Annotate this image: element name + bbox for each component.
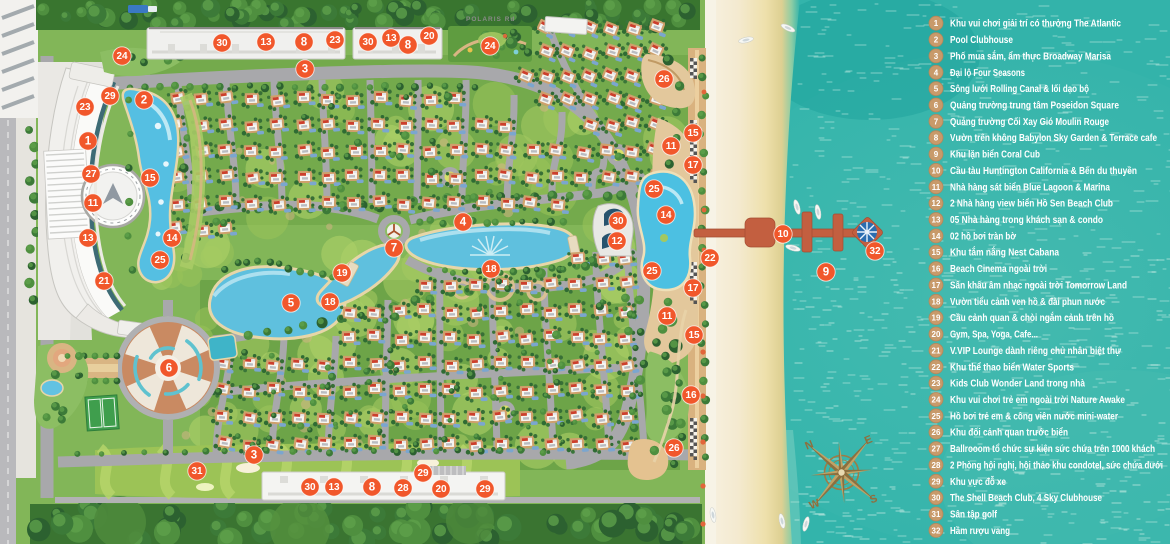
- svg-text:Cầu tàu Huntington California: Cầu tàu Huntington California & Bến du t…: [950, 165, 1137, 177]
- svg-text:17: 17: [932, 281, 941, 290]
- svg-text:11: 11: [932, 183, 941, 192]
- svg-text:V.VIP Lounge dành riêng chủ nh: V.VIP Lounge dành riêng chủ nhân biệt th…: [950, 345, 1121, 357]
- svg-text:15: 15: [687, 128, 699, 139]
- svg-text:9: 9: [934, 150, 939, 159]
- svg-text:Quảng trường Cối Xay Gió Mouli: Quảng trường Cối Xay Gió Moulin Rouge: [950, 116, 1109, 128]
- svg-text:30: 30: [304, 482, 316, 493]
- svg-text:4: 4: [460, 217, 467, 229]
- svg-text:3: 3: [251, 450, 257, 462]
- svg-text:5: 5: [934, 85, 939, 94]
- svg-text:18: 18: [324, 297, 336, 308]
- svg-text:12: 12: [932, 199, 941, 208]
- svg-text:11: 11: [666, 141, 677, 152]
- svg-text:Khu lặn biển Coral Cub: Khu lặn biển Coral Cub: [950, 149, 1040, 161]
- svg-text:21: 21: [98, 276, 110, 287]
- svg-text:6: 6: [166, 363, 172, 375]
- svg-text:7: 7: [934, 117, 939, 126]
- svg-text:26: 26: [668, 443, 680, 454]
- svg-text:29: 29: [104, 91, 116, 102]
- svg-text:25: 25: [648, 184, 660, 195]
- svg-text:2 Phòng hội nghị, hội thảo khu: 2 Phòng hội nghị, hội thảo khu condotel,…: [950, 459, 1163, 471]
- svg-text:Kids Club Wonder Land trong nh: Kids Club Wonder Land trong nhà: [950, 378, 1085, 390]
- svg-text:Nhà hàng sát biển Blue Lagoon: Nhà hàng sát biển Blue Lagoon & Marina: [950, 181, 1110, 193]
- svg-text:3: 3: [302, 64, 308, 76]
- svg-text:25: 25: [932, 412, 941, 421]
- svg-text:POLARIS Rd: POLARIS Rd: [466, 16, 515, 23]
- svg-text:32: 32: [932, 526, 941, 535]
- svg-text:2: 2: [141, 95, 147, 107]
- svg-text:31: 31: [191, 466, 203, 477]
- svg-text:21: 21: [932, 346, 941, 355]
- svg-text:05 Nhà hàng trong khách sạn &: 05 Nhà hàng trong khách sạn & condo: [950, 214, 1103, 226]
- svg-text:13: 13: [932, 216, 941, 225]
- svg-text:23: 23: [79, 102, 91, 113]
- svg-text:23: 23: [329, 35, 341, 46]
- svg-text:17: 17: [687, 283, 699, 294]
- svg-text:2 Nhà hàng view biển Hồ Sen Be: 2 Nhà hàng view biển Hồ Sen Beach Club: [950, 198, 1113, 210]
- svg-text:Ballrooom tổ chức sự kiện sức: Ballrooom tổ chức sự kiện sức chứa trên …: [950, 443, 1155, 455]
- svg-text:13: 13: [328, 482, 340, 493]
- svg-text:Sân khấu âm nhạc ngoài trời To: Sân khấu âm nhạc ngoài trời Tomorrow Lan…: [950, 280, 1127, 292]
- svg-text:32: 32: [869, 246, 881, 257]
- svg-text:7: 7: [391, 243, 397, 255]
- svg-text:26: 26: [932, 428, 941, 437]
- svg-text:17: 17: [687, 160, 699, 171]
- svg-text:30: 30: [932, 494, 941, 503]
- svg-text:5: 5: [288, 298, 295, 310]
- svg-text:Hầm rượu vang: Hầm rượu vang: [950, 525, 1010, 537]
- svg-text:15: 15: [688, 330, 700, 341]
- svg-text:Khu đối cảnh quan trước biển: Khu đối cảnh quan trước biển: [950, 427, 1068, 439]
- svg-text:16: 16: [685, 390, 697, 401]
- svg-text:19: 19: [336, 268, 348, 279]
- svg-text:15: 15: [144, 173, 156, 184]
- svg-text:Khu vui chơi trẻ em ngoài trời: Khu vui chơi trẻ em ngoài trời Nature Aw…: [950, 394, 1125, 406]
- svg-text:Cầu cảnh quan & chòi ngắm cảnh: Cầu cảnh quan & chòi ngắm cảnh trên hồ: [950, 311, 1114, 324]
- svg-text:The Shell Beach Club, 4 Sky Cl: The Shell Beach Club, 4 Sky Clubhouse: [950, 492, 1102, 504]
- svg-text:Hồ bơi trẻ em & công viên nước: Hồ bơi trẻ em & công viên nước mini-wate…: [950, 410, 1118, 422]
- svg-text:24: 24: [116, 51, 128, 62]
- svg-text:10: 10: [777, 229, 789, 240]
- svg-text:3: 3: [934, 52, 939, 61]
- svg-text:18: 18: [932, 297, 941, 306]
- svg-text:19: 19: [932, 314, 941, 323]
- svg-text:20: 20: [423, 31, 435, 42]
- svg-text:31: 31: [932, 510, 941, 519]
- svg-text:28: 28: [932, 461, 941, 470]
- svg-text:20: 20: [435, 484, 447, 495]
- svg-text:28: 28: [397, 483, 409, 494]
- svg-text:16: 16: [932, 265, 941, 274]
- svg-text:14: 14: [166, 233, 178, 244]
- svg-text:15: 15: [932, 248, 941, 257]
- svg-text:30: 30: [216, 38, 228, 49]
- svg-text:24: 24: [932, 396, 941, 405]
- svg-text:Pool Clubhouse: Pool Clubhouse: [950, 34, 1013, 46]
- svg-text:Khu vui chơi giải trí có thưởn: Khu vui chơi giải trí có thưởng The Atla…: [950, 18, 1121, 30]
- svg-text:Sân tập golf: Sân tập golf: [950, 509, 997, 521]
- svg-text:11: 11: [662, 311, 673, 322]
- svg-text:02 hồ bơi tràn bờ: 02 hồ bơi tràn bờ: [950, 230, 1016, 242]
- svg-text:24: 24: [484, 41, 496, 52]
- svg-text:27: 27: [85, 169, 97, 180]
- svg-text:Gym, Spa, Yoga, Cafe...: Gym, Spa, Yoga, Cafe...: [950, 329, 1038, 341]
- svg-text:1: 1: [85, 136, 92, 148]
- svg-text:25: 25: [646, 266, 658, 277]
- svg-text:13: 13: [385, 33, 397, 44]
- svg-text:14: 14: [932, 232, 941, 241]
- svg-text:29: 29: [479, 484, 491, 495]
- svg-text:8: 8: [405, 40, 412, 52]
- svg-text:Quảng trường trung tâm Poseido: Quảng trường trung tâm Poseidon Square: [950, 100, 1119, 112]
- svg-text:Khu thể thao biển Water Sports: Khu thể thao biển Water Sports: [950, 361, 1074, 373]
- svg-text:Khu tắm nắng Nest Cabana: Khu tắm nắng Nest Cabana: [950, 246, 1059, 259]
- svg-text:2: 2: [934, 36, 939, 45]
- svg-text:22: 22: [932, 363, 941, 372]
- svg-text:13: 13: [260, 37, 272, 48]
- svg-text:30: 30: [612, 216, 624, 227]
- svg-text:18: 18: [485, 264, 497, 275]
- svg-text:9: 9: [823, 267, 829, 279]
- svg-text:12: 12: [611, 236, 623, 247]
- svg-text:4: 4: [934, 68, 939, 77]
- svg-text:8: 8: [301, 37, 308, 49]
- svg-text:Vườn tiểu cảnh ven hồ & đài ph: Vườn tiểu cảnh ven hồ & đài phun nước: [950, 296, 1105, 308]
- svg-text:Khu vực đỗ xe: Khu vực đỗ xe: [950, 475, 1006, 488]
- svg-text:20: 20: [932, 330, 941, 339]
- svg-text:Vườn trên không Babylon Sky Ga: Vườn trên không Babylon Sky Garden & Ter…: [950, 132, 1157, 144]
- svg-text:22: 22: [704, 253, 716, 264]
- svg-text:29: 29: [417, 468, 429, 479]
- svg-text:13: 13: [82, 233, 94, 244]
- svg-text:29: 29: [932, 477, 941, 486]
- svg-text:23: 23: [932, 379, 941, 388]
- svg-text:14: 14: [660, 210, 672, 221]
- svg-text:Đại lộ Four Seasons: Đại lộ Four Seasons: [950, 67, 1025, 79]
- svg-text:11: 11: [88, 198, 99, 209]
- svg-text:26: 26: [658, 74, 670, 85]
- svg-text:8: 8: [934, 134, 939, 143]
- svg-text:8: 8: [369, 482, 376, 494]
- svg-text:Beach Cinema ngoài trời: Beach Cinema ngoài trời: [950, 263, 1047, 275]
- svg-text:10: 10: [932, 166, 941, 175]
- svg-text:Phố mua sắm, ẩm thực Broadway: Phố mua sắm, ẩm thực Broadway Marisa: [950, 49, 1111, 62]
- svg-text:Sông lưới Rolling Canal & lối: Sông lưới Rolling Canal & lối dạo bộ: [950, 83, 1089, 95]
- svg-text:27: 27: [932, 445, 941, 454]
- svg-text:25: 25: [154, 255, 166, 266]
- svg-text:6: 6: [934, 101, 939, 110]
- svg-text:30: 30: [362, 37, 374, 48]
- svg-text:1: 1: [934, 19, 939, 28]
